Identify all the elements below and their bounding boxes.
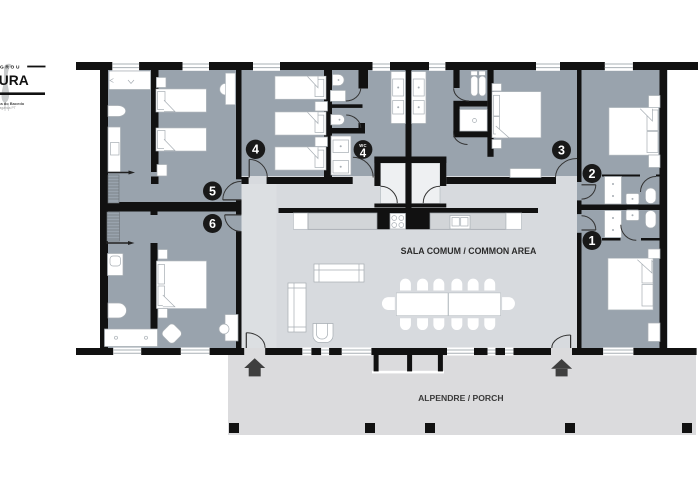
svg-text:SALA COMUM / COMMON AREA: SALA COMUM / COMMON AREA bbox=[401, 246, 537, 256]
svg-text:Braganca PT: Braganca PT bbox=[0, 106, 16, 110]
svg-text:ALTURA: ALTURA bbox=[0, 73, 29, 88]
svg-text:4: 4 bbox=[252, 143, 259, 157]
svg-text:3: 3 bbox=[558, 143, 565, 157]
svg-text:6: 6 bbox=[209, 217, 216, 231]
svg-text:4: 4 bbox=[360, 148, 367, 160]
svg-text:5: 5 bbox=[209, 184, 216, 198]
svg-text:1: 1 bbox=[589, 234, 596, 248]
svg-text:2: 2 bbox=[589, 167, 596, 181]
svg-text:O GROU: O GROU bbox=[0, 64, 21, 70]
svg-text:ALPENDRE / PORCH: ALPENDRE / PORCH bbox=[418, 393, 503, 403]
